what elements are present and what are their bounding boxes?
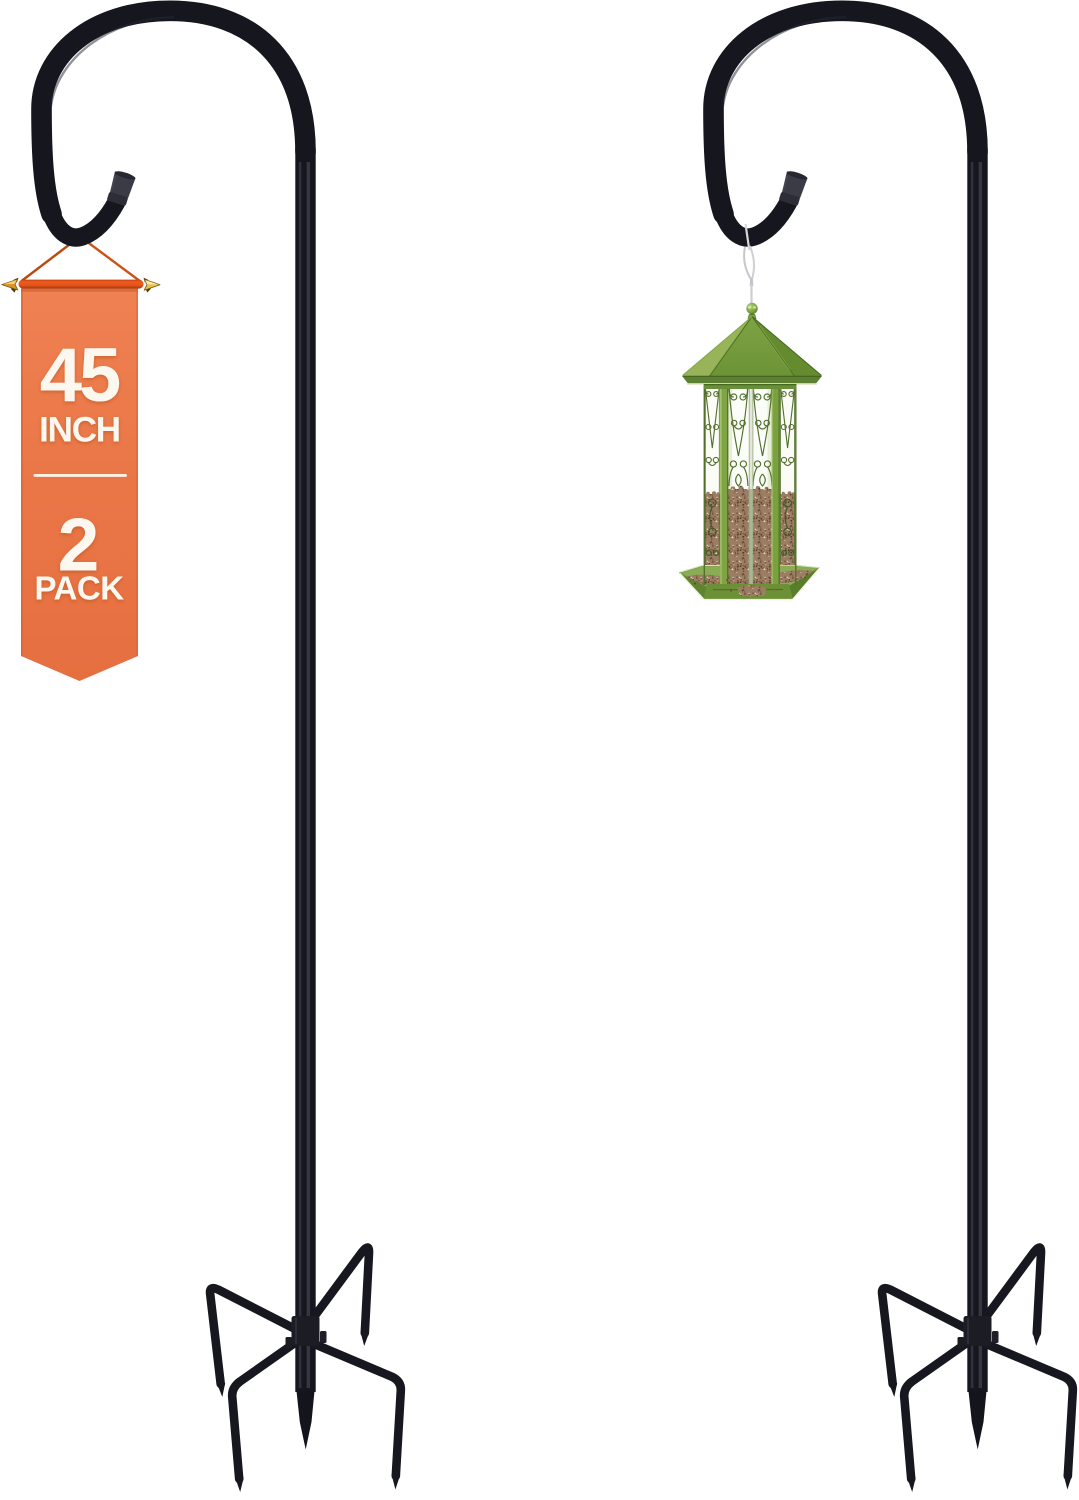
svg-text:INCH: INCH (39, 410, 120, 449)
svg-text:45: 45 (40, 333, 120, 418)
svg-text:PACK: PACK (34, 570, 124, 607)
